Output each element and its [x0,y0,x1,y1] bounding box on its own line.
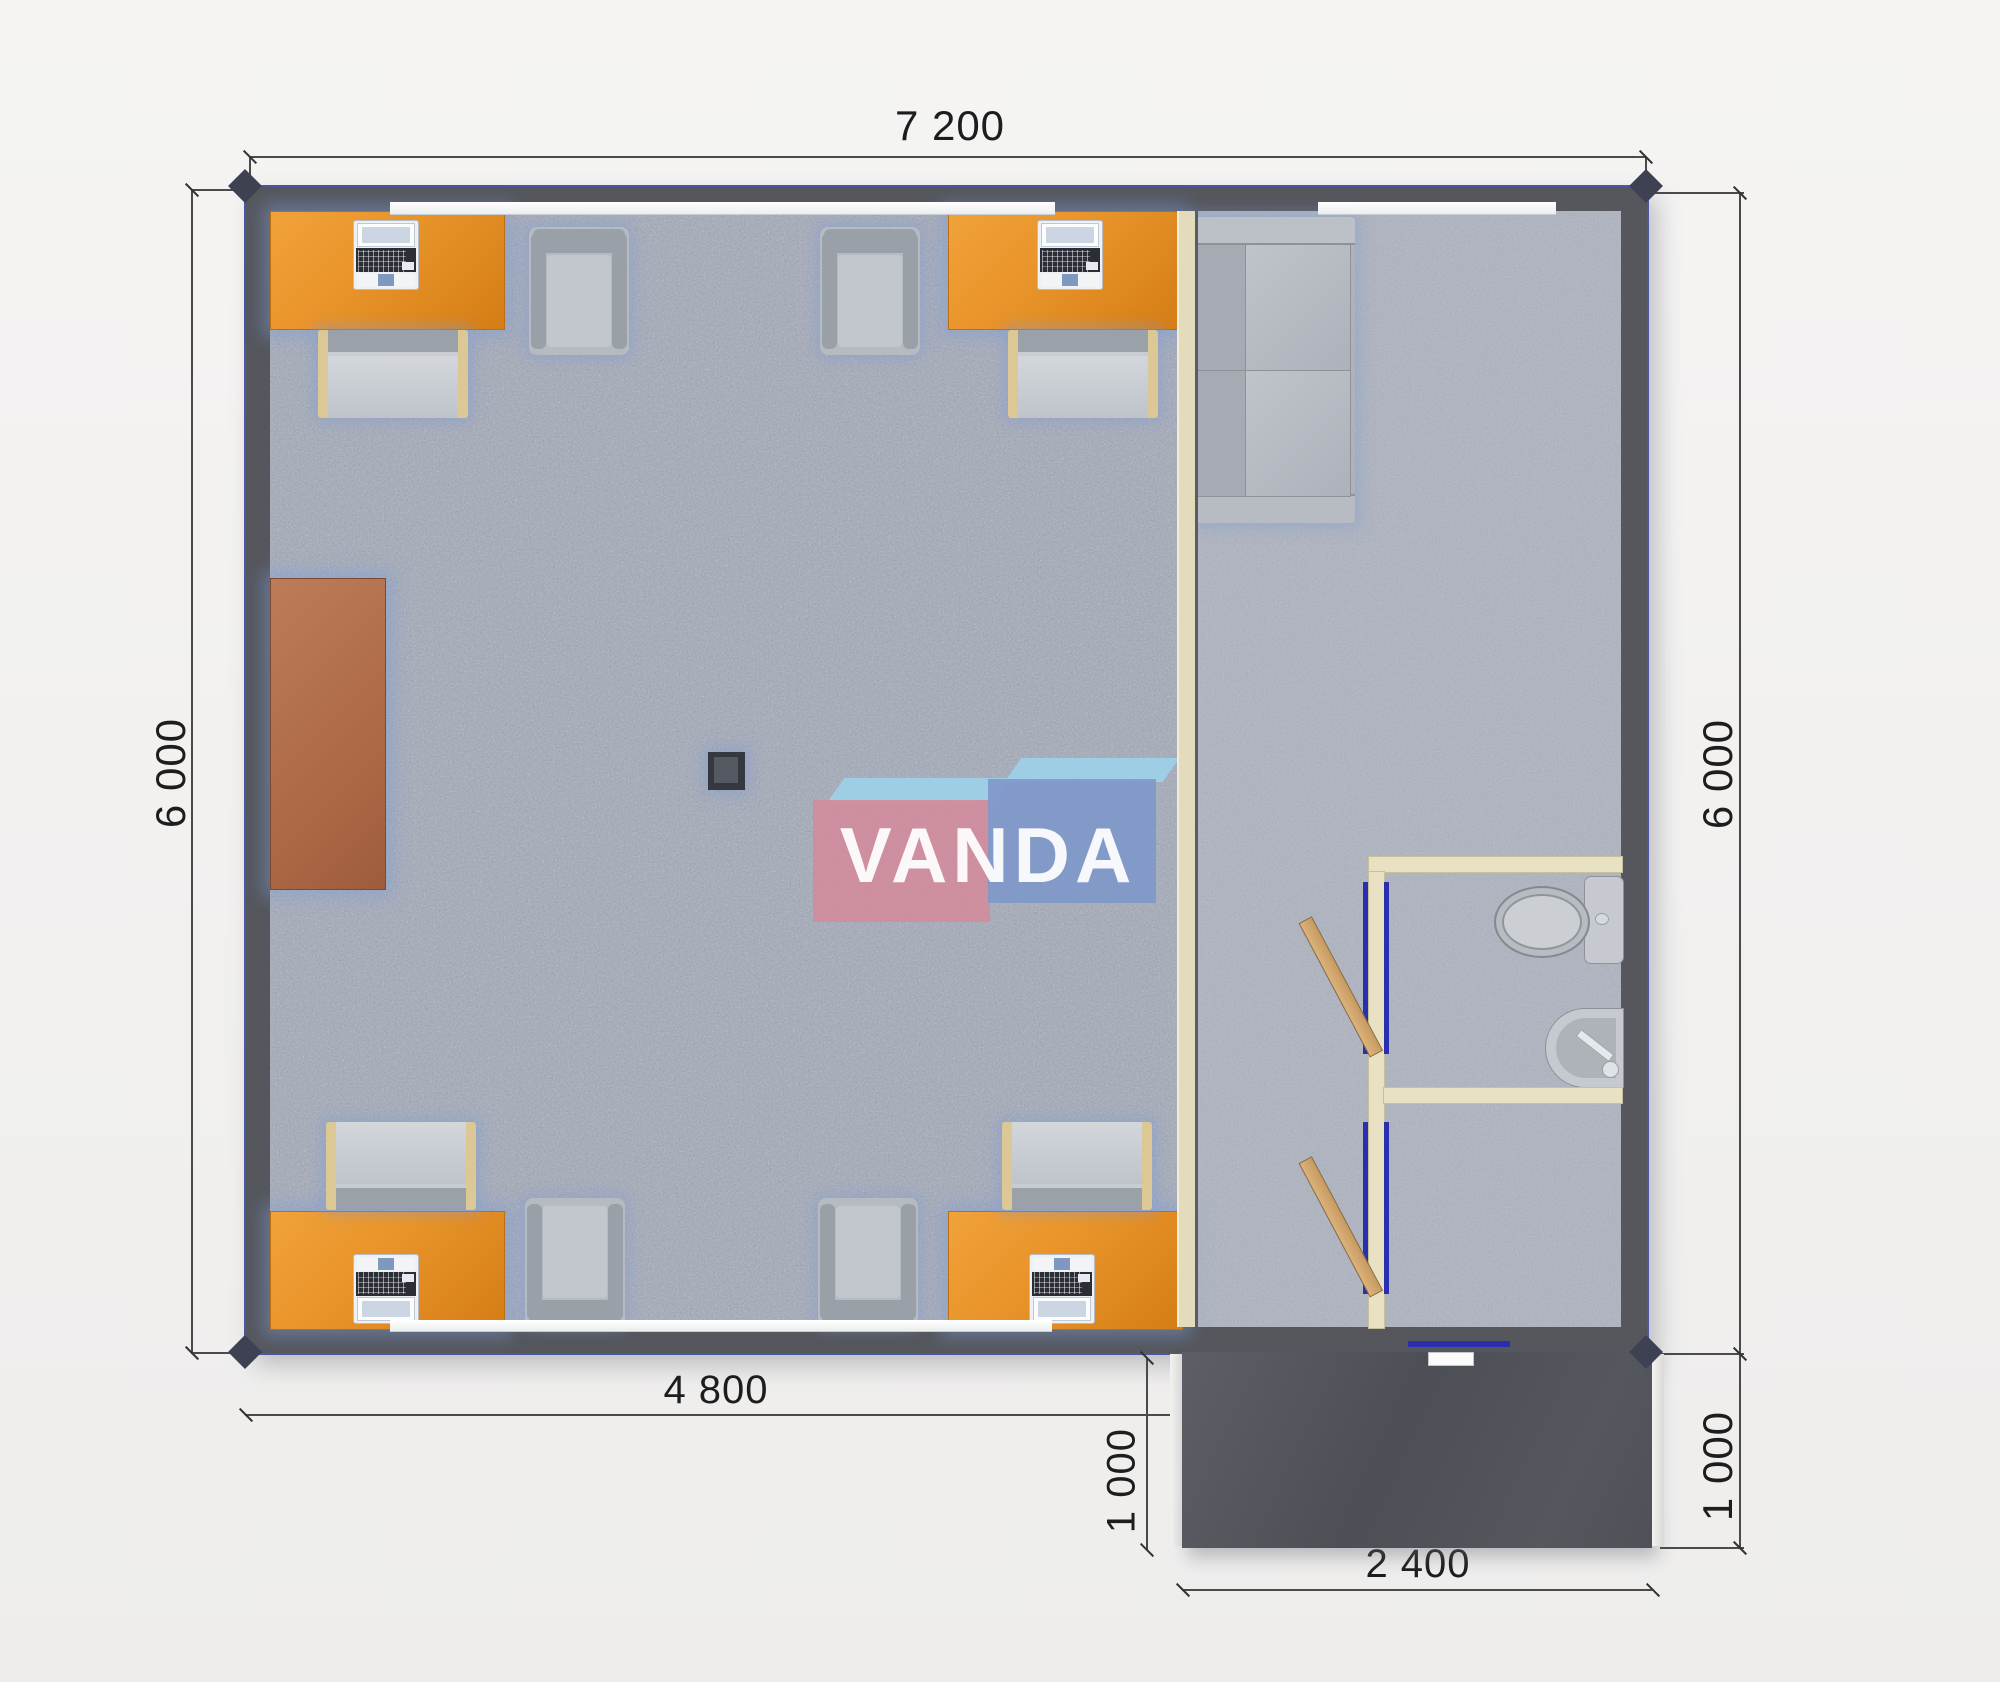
floor-plan-canvas: VANDA 7 200 6 000 [0,0,2000,1682]
chair-seat [328,356,458,418]
dim-line-top [250,156,1646,158]
chair-back [1012,1188,1142,1210]
desk-chair-bottom-right [1002,1122,1152,1210]
dim-label-room-width: 4 800 [616,1368,816,1413]
door-frame-blue [1384,882,1389,1054]
bathroom-wall-middle [1383,1087,1623,1104]
toilet-tank [1584,876,1624,964]
armchair-seat [836,1206,900,1298]
window-bottom [390,1320,1052,1332]
logo-roof-left [828,778,1013,802]
laptop-touchpad [357,1257,415,1271]
armchair-bottom-1 [525,1198,625,1326]
dim-line-porch-depth [1146,1358,1148,1550]
dim-ext [1658,1353,1744,1355]
dim-label-top-width: 7 200 [850,102,1050,150]
bathroom-wall-top [1368,856,1623,873]
storage-cabinet [270,578,386,890]
laptop-touchpad [1033,1257,1091,1271]
armchair-seat [838,255,902,347]
sofa-armrest [1192,494,1355,523]
window-top-right [1318,202,1556,215]
dim-line-right [1739,193,1741,1548]
laptop-screen [357,223,415,247]
desk-top-left [270,211,505,330]
desk-chair-top-right [1008,330,1158,418]
toilet-bowl [1494,886,1590,958]
laptop-screen [1041,223,1099,247]
entry-door-frame [1408,1341,1510,1347]
laptop-keyboard [356,1272,416,1296]
laptop-touchpad [1041,273,1099,287]
laptop-screen [357,1297,415,1321]
desk-chair-bottom-left [326,1122,476,1210]
sofa-back-cushion [1197,370,1247,497]
logo-text: VANDA [808,810,1168,901]
laptop-keyboard [1040,248,1100,272]
dim-label-left-height: 6 000 [147,710,195,836]
dim-label-porch-depth-right: 1 000 [1694,1403,1742,1529]
dim-label-right-height: 6 000 [1694,711,1742,837]
laptop-touchpad [357,273,415,287]
partition-wall [1177,211,1198,1327]
armchair-back [824,229,916,253]
dim-line-room-width [245,1414,1182,1416]
dim-line-porch-width [1182,1589,1652,1591]
chair-back [336,1188,466,1210]
chair-back [1018,330,1148,352]
sofa-seat-cushion [1245,370,1351,497]
laptop-keyboard [356,248,416,272]
entry-porch [1182,1352,1652,1548]
laptop-screen [1033,1297,1091,1321]
laptop [1029,1254,1095,1324]
desk-chair-top-left [318,330,468,418]
sofa-armrest [1192,217,1355,245]
sofa [1192,217,1355,523]
laptop [353,220,419,290]
desk-bottom-left [270,1211,505,1330]
chair-seat [1018,356,1148,418]
armchair-top-1 [529,227,629,355]
porch-edge-right [1652,1354,1664,1546]
armchair-back [533,229,625,253]
armchair-top-2 [820,227,920,355]
entry-door-open [1428,1352,1474,1366]
desk-bottom-right [948,1211,1183,1330]
sink-faucet-knob [1602,1061,1619,1078]
vanda-watermark: VANDA [808,752,1198,942]
armchair-bottom-2 [818,1198,918,1326]
armchair-seat [547,255,611,347]
desk-top-right [948,211,1183,330]
laptop [353,1254,419,1324]
door-frame-blue [1384,1122,1389,1294]
dim-label-porch-depth-left: 1 000 [1100,1418,1145,1544]
chair-back [328,330,458,352]
armchair-seat [543,1206,607,1298]
stove-column [708,752,745,790]
porch-edge-left [1170,1354,1182,1546]
dim-label-porch-width: 2 400 [1318,1542,1518,1587]
corner-sink [1545,1008,1624,1088]
laptop-keyboard [1032,1272,1092,1296]
sofa-seat-cushion [1245,244,1351,371]
laptop [1037,220,1103,290]
dim-ext [1650,192,1744,194]
dim-ext [1660,1547,1744,1549]
chair-seat [1012,1122,1142,1184]
sofa-back-cushion [1197,244,1247,371]
chair-seat [336,1122,466,1184]
window-top-left [390,202,1055,215]
